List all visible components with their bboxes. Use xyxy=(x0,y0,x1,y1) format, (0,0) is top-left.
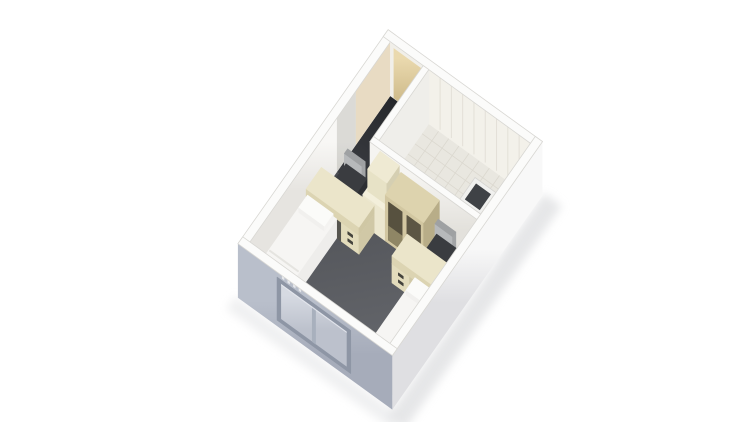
isometric-room-rendering xyxy=(0,0,750,422)
screenshot-root xyxy=(0,0,750,422)
window-sash-divider xyxy=(312,307,315,344)
